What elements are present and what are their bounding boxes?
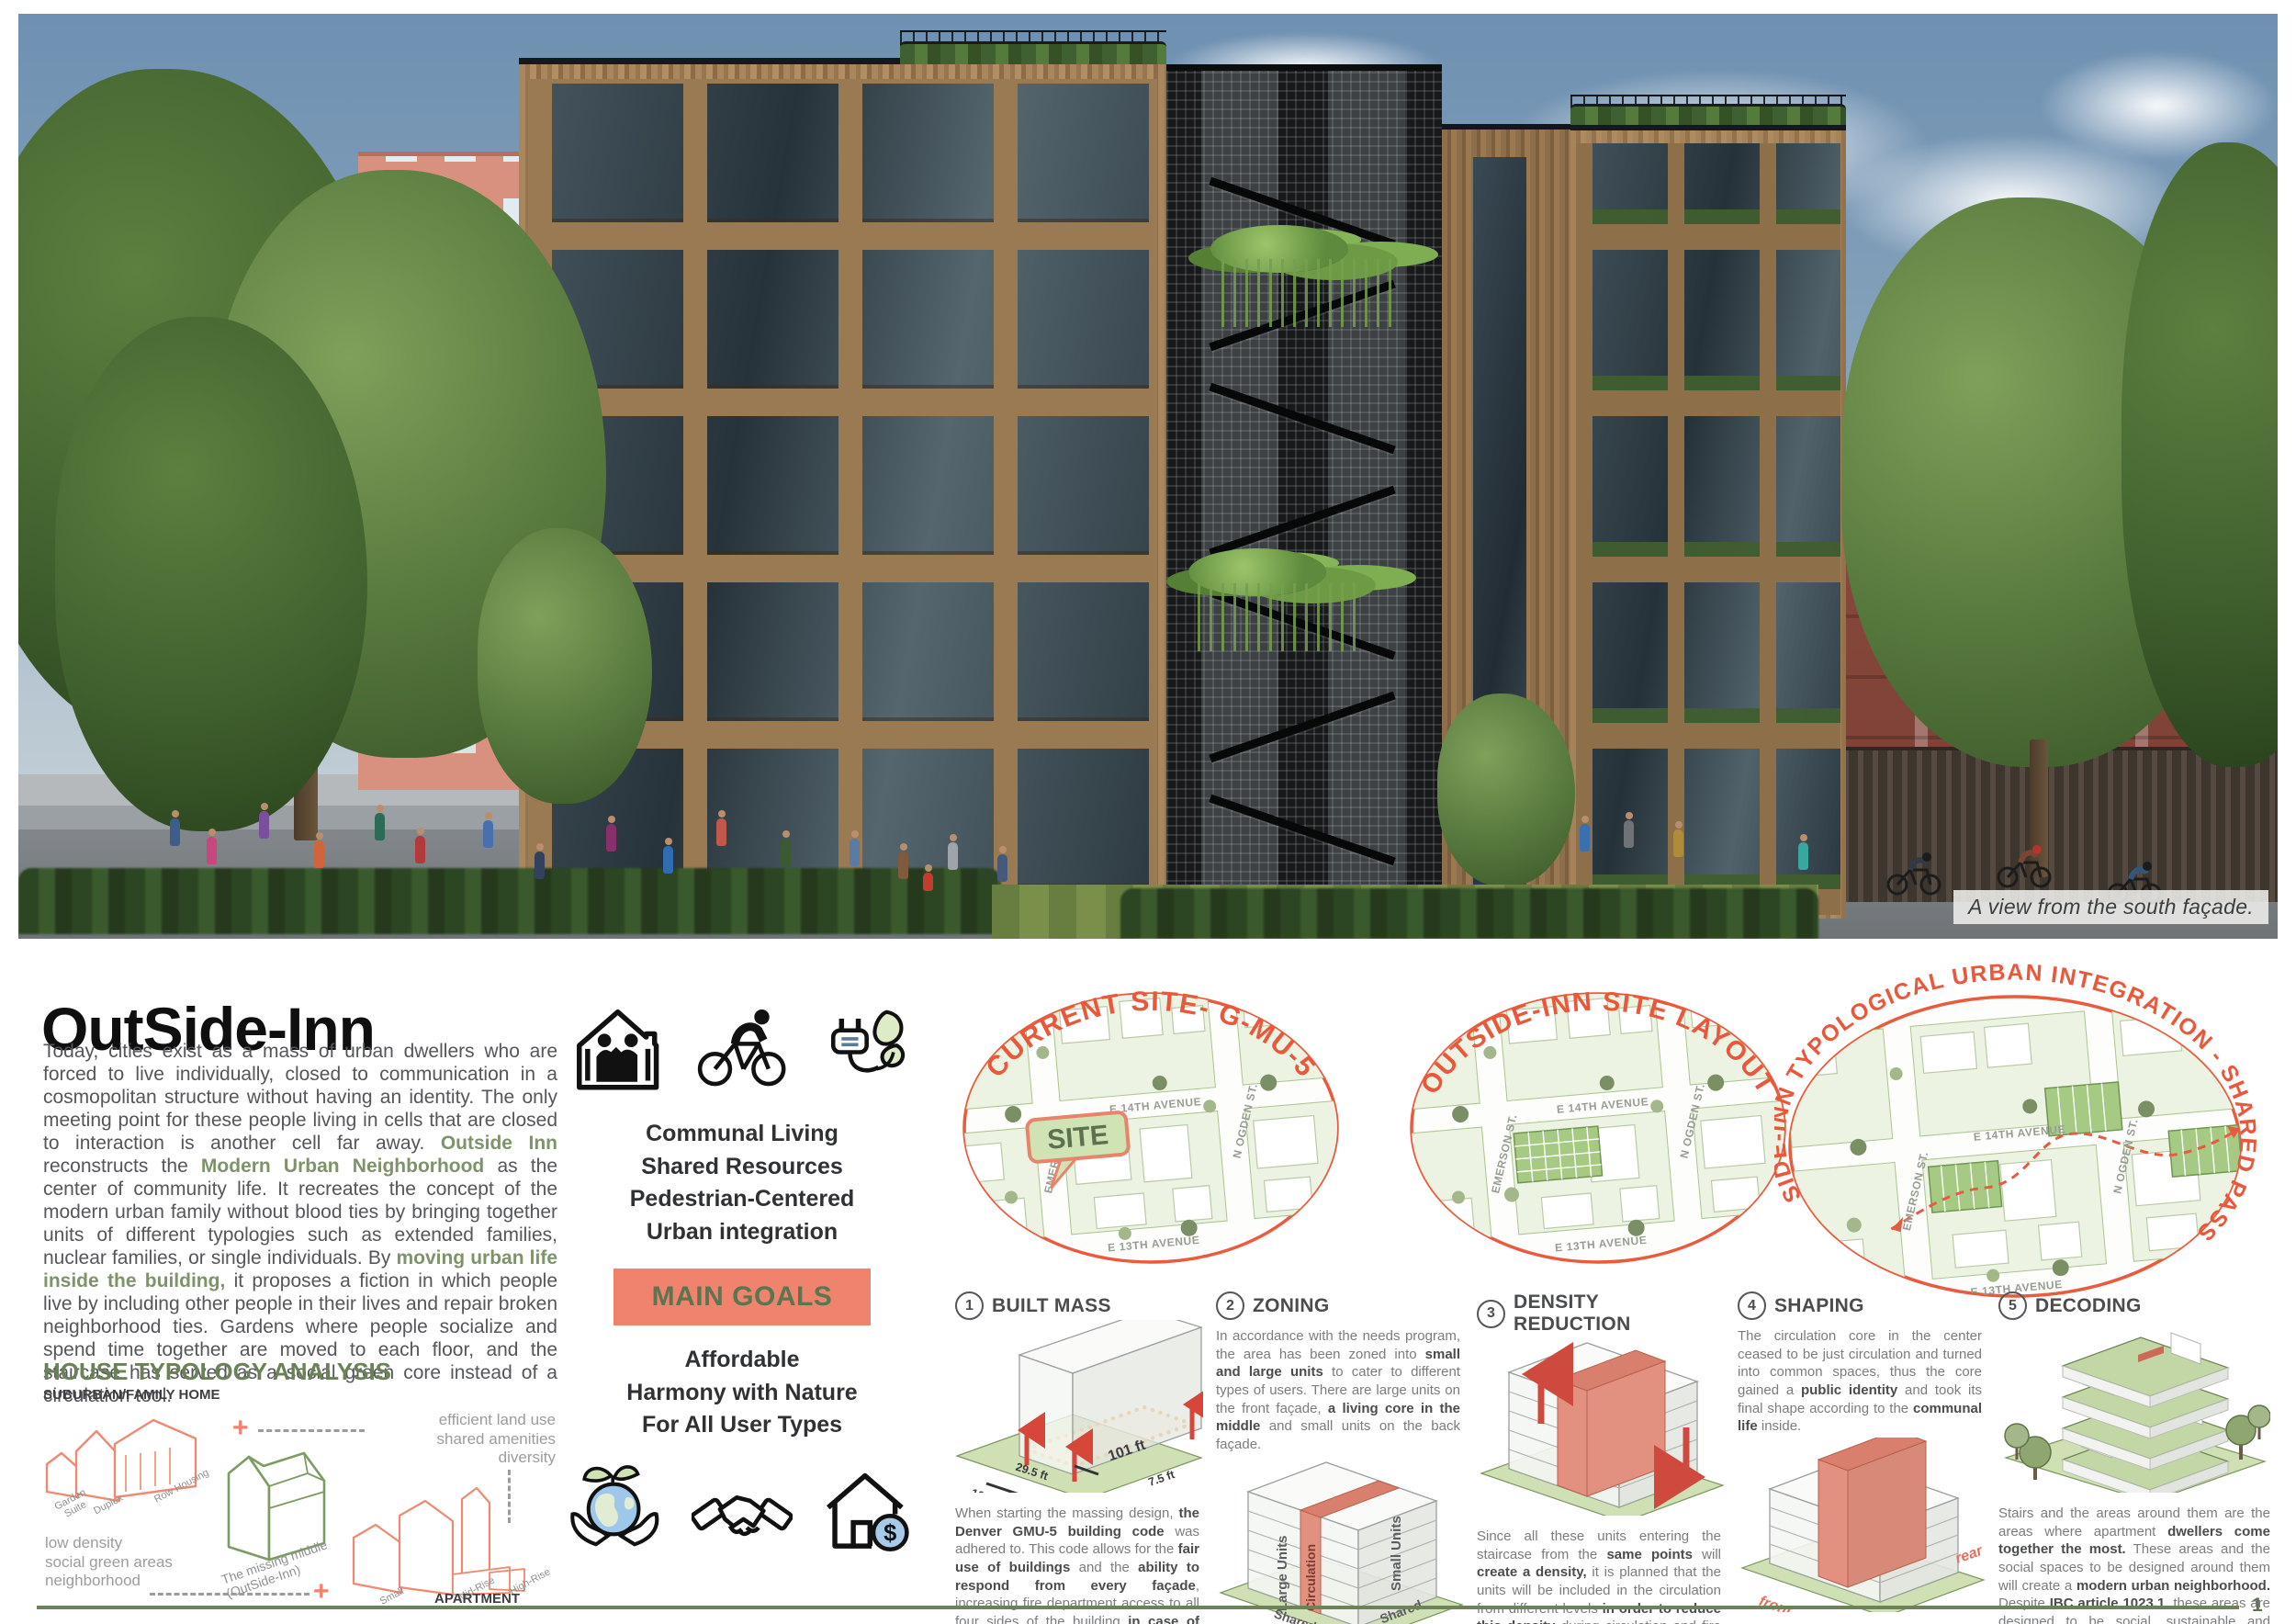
zoning-diagram: Large Units Circulation Small Units Shar… <box>1216 1455 1464 1624</box>
plus-marker: + <box>313 1578 330 1606</box>
typology-diagram: Garden Suite Duplex Row Housing + effici… <box>41 1404 560 1604</box>
core-mesh <box>1166 71 1442 919</box>
dashed-connector <box>150 1593 310 1596</box>
photo-caption: A view from the south façade. <box>1953 890 2268 924</box>
typology-right-note: efficient land use shared amenities dive… <box>368 1411 556 1468</box>
goal-line: Communal Living <box>568 1118 917 1151</box>
person-figure <box>1624 820 1634 848</box>
ivy-drip <box>1221 259 1396 327</box>
child-figure <box>923 873 933 891</box>
communal-house-icon <box>568 992 668 1102</box>
suburban-houses-drawing <box>41 1407 207 1508</box>
window-grid <box>1576 143 1840 915</box>
step-number: 4 <box>1738 1291 1766 1320</box>
zone-label-large: Large Units <box>1275 1536 1290 1612</box>
map-site-layout: E 14TH AVENUE E 13TH AVENUE EMERSON ST. … <box>1398 955 1802 1272</box>
step-title: DENSITY REDUCTION <box>1514 1291 1721 1336</box>
step-header: 5 DECODING <box>1998 1291 2270 1320</box>
svg-text:$: $ <box>884 1520 896 1546</box>
step-header: 4 SHAPING <box>1738 1291 1982 1320</box>
person-figure <box>207 837 217 864</box>
person-figure <box>716 818 726 846</box>
ivy-drip <box>1198 583 1363 651</box>
hedge <box>1120 888 1818 939</box>
roof-garden <box>900 41 1166 64</box>
plug-leaf-icon <box>816 992 917 1102</box>
person-figure <box>415 836 425 863</box>
hero-photo: A view from the south façade. <box>18 14 2278 939</box>
person-figure <box>781 839 791 866</box>
goal-line: Affordable <box>568 1344 917 1377</box>
step-title: DECODING <box>2035 1295 2142 1317</box>
intro-paragraph: Today, cities exist as a mass of urban d… <box>43 1041 557 1408</box>
cyclist-figure <box>1883 848 1947 896</box>
step-body: In accordance with the needs program, th… <box>1216 1327 1460 1453</box>
footer-rule <box>37 1606 2239 1609</box>
step-number: 2 <box>1216 1291 1244 1320</box>
goal-line: For All User Types <box>568 1409 917 1442</box>
zone-label-circulation: Circulation <box>1303 1544 1318 1611</box>
person-figure <box>948 842 958 870</box>
decoding-diagram <box>1998 1322 2270 1493</box>
step-number: 3 <box>1477 1300 1505 1328</box>
goal-line: Shared Resources <box>568 1151 917 1184</box>
step-header: 3 DENSITY REDUCTION <box>1477 1291 1721 1336</box>
person-figure <box>663 846 673 874</box>
page-number: 1 <box>2252 1595 2263 1617</box>
step-title: ZONING <box>1253 1295 1329 1317</box>
building-front-block <box>519 58 1166 919</box>
apartment-label: APARTMENT <box>434 1591 520 1607</box>
step-zoning: 2 ZONING In accordance with the needs pr… <box>1216 1291 1460 1608</box>
map-current-site: E 14TH AVENUE E 13TH AVENUE EMERSON ST. … <box>951 955 1355 1272</box>
person-figure <box>1673 829 1683 857</box>
person-figure <box>606 824 616 851</box>
proposed-building <box>1514 1126 1602 1183</box>
person-figure <box>850 839 860 866</box>
handshake-icon <box>692 1454 792 1564</box>
presentation-board: A view from the south façade. OutSide-In… <box>0 0 2296 1624</box>
step-number: 1 <box>955 1291 984 1320</box>
shaping-diagram: front rear <box>1738 1438 1986 1612</box>
step-density-reduction: 3 DENSITY REDUCTION Since all these unit… <box>1477 1291 1721 1608</box>
building-rear-wing <box>1570 124 1846 919</box>
goal-icons-bottom: $ <box>568 1449 917 1569</box>
zone-label-small: Small Units <box>1389 1517 1404 1592</box>
step-body: The circulation core in the center cease… <box>1738 1327 1982 1436</box>
person-figure <box>997 854 1007 882</box>
goal-line: Harmony with Nature <box>568 1377 917 1410</box>
person-figure <box>314 840 324 868</box>
typology-left-note: low density social green areas neighborh… <box>45 1534 219 1591</box>
person-figure <box>1580 824 1590 851</box>
step-header: 2 ZONING <box>1216 1291 1460 1320</box>
person-figure <box>170 818 180 846</box>
cyclist-icon <box>692 992 792 1102</box>
goal-line: Pedestrian-Centered <box>568 1183 917 1216</box>
step-header: 1 BUILT MASS <box>955 1291 1199 1320</box>
dim-setback-front: 10 ft <box>970 1486 997 1493</box>
map-urban-integration: E 14TH AVENUE E 13TH AVENUE EMERSON ST. … <box>1774 953 2279 1304</box>
person-figure <box>1798 842 1808 870</box>
shrub <box>1437 694 1575 886</box>
roof-garden <box>1570 104 1846 125</box>
cyclist-figure <box>1993 840 2057 888</box>
density-diagram <box>1477 1339 1725 1516</box>
built-mass-diagram: 101 ft 29.5 ft 7.5 ft 10 ft <box>955 1320 1203 1493</box>
earth-hands-icon <box>568 1454 668 1564</box>
typology-subheading: SUBURBAN/FAMILY HOME <box>43 1387 220 1403</box>
window-grid <box>528 79 1157 915</box>
main-goals-banner: MAIN GOALS <box>613 1269 872 1325</box>
person-figure <box>898 851 908 879</box>
dashed-connector <box>258 1429 365 1432</box>
house-dollar-icon: $ <box>816 1454 917 1564</box>
site-label: SITE <box>1046 1120 1109 1156</box>
step-built-mass: 1 BUILT MASS 101 ft 29.5 ft 7.5 ft 10 ft… <box>955 1291 1199 1608</box>
step-number: 5 <box>1998 1291 2027 1320</box>
person-figure <box>483 820 493 848</box>
step-title: BUILT MASS <box>992 1295 1111 1317</box>
step-body: Since all these units entering the stair… <box>1477 1528 1721 1624</box>
goal-text-top: Communal Living Shared Resources Pedestr… <box>568 1118 917 1248</box>
hedge <box>18 868 1001 934</box>
step-title: SHAPING <box>1774 1295 1864 1317</box>
person-figure <box>259 811 269 839</box>
goal-line: Urban integration <box>568 1216 917 1249</box>
person-figure <box>375 813 385 840</box>
goal-icons-top <box>568 987 917 1107</box>
goal-text-bottom: Affordable Harmony with Nature For All U… <box>568 1344 917 1442</box>
step-shaping: 4 SHAPING The circulation core in the ce… <box>1738 1291 1982 1608</box>
building-stair-core <box>1166 64 1442 919</box>
typology-heading: HOUSE TYPOLOGY ANALYSIS <box>43 1358 391 1386</box>
goals-column: Communal Living Shared Resources Pedestr… <box>568 987 917 1569</box>
person-figure <box>535 851 545 879</box>
step-decoding: 5 DECODING <box>1998 1291 2270 1608</box>
